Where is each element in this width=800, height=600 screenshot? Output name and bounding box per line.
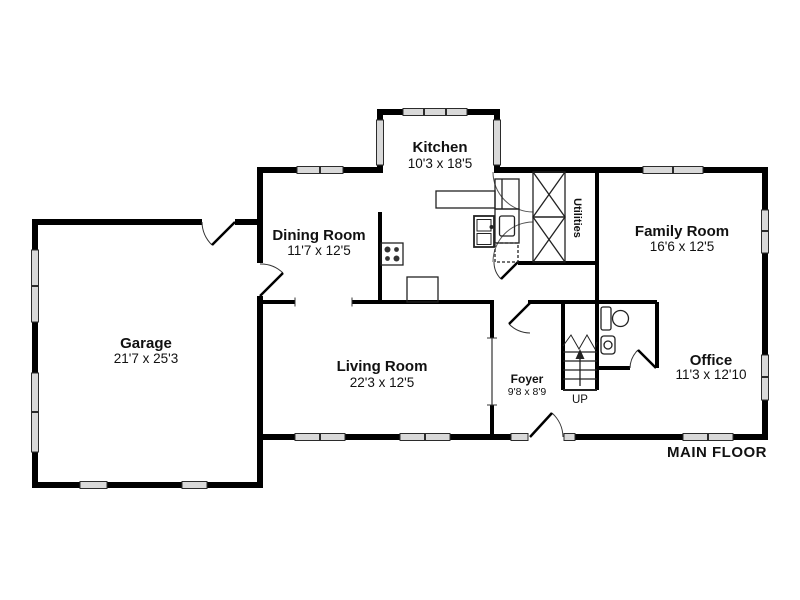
garage-dims: 21'7 x 25'3 [114, 351, 178, 366]
garage-name: Garage [120, 335, 172, 352]
plan-title: MAIN FLOOR [667, 444, 767, 461]
room-label-living: Living Room 22'3 x 12'5 [337, 358, 428, 390]
family-dims: 16'6 x 12'5 [650, 239, 714, 254]
living-name: Living Room [337, 358, 428, 375]
window [377, 120, 384, 165]
foyer-name: Foyer [511, 372, 544, 386]
window [403, 109, 467, 116]
floor-plan-drawing: Kitchen 10'3 x 18'5 Dining Room 11'7 x 1… [0, 0, 800, 600]
room-label-garage: Garage 21'7 x 25'3 [114, 335, 178, 366]
room-label-kitchen: Kitchen 10'3 x 18'5 [408, 139, 472, 171]
dining-dims: 11'7 x 12'5 [287, 243, 350, 258]
stairs-up-label: UP [572, 394, 588, 406]
dining-name: Dining Room [272, 227, 365, 244]
kitchen-name: Kitchen [412, 139, 467, 156]
window [564, 434, 575, 441]
window [80, 482, 107, 489]
living-dims: 22'3 x 12'5 [350, 375, 414, 390]
kitchen-dims: 10'3 x 18'5 [408, 156, 472, 171]
floor-plan-page: Kitchen 10'3 x 18'5 Dining Room 11'7 x 1… [0, 0, 800, 600]
window [511, 434, 528, 441]
family-name: Family Room [635, 223, 729, 240]
window [494, 120, 501, 165]
window [182, 482, 207, 489]
foyer-dims: 9'8 x 8'9 [508, 386, 547, 398]
utilities-label: Utilities [571, 198, 583, 238]
office-dims: 11'3 x 12'10 [676, 367, 747, 382]
room-label-foyer: Foyer 9'8 x 8'9 [508, 372, 547, 398]
